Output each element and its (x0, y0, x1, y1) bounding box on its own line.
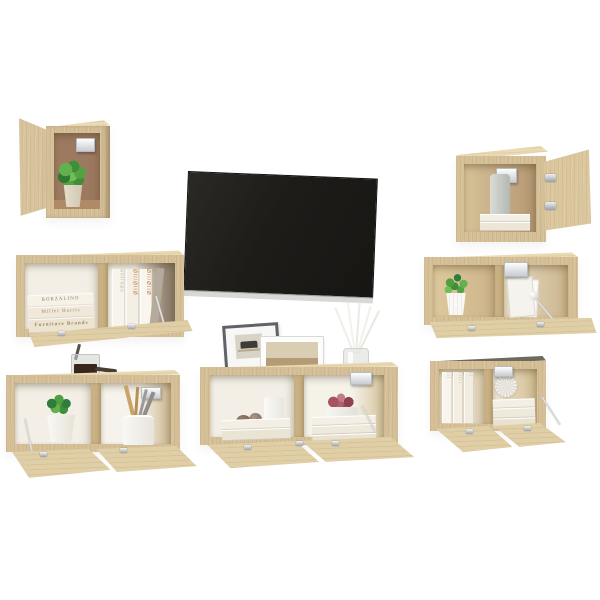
book-spine: IIIII (453, 372, 464, 423)
standing-books: III IIIII II (442, 372, 474, 423)
standing-books: antropo ØII/ØIIØ ØII/ØIIØ (112, 269, 152, 327)
book-spine: II (464, 372, 474, 423)
cabinet-right-middle (424, 257, 578, 325)
shelf-divider (98, 263, 108, 329)
bottom-right-left-compartment: III IIIII II (439, 369, 484, 424)
door-hinge-icon (537, 322, 544, 327)
book (480, 222, 530, 231)
book (480, 214, 530, 222)
door-hinge-icon (40, 452, 47, 457)
wall-bracket-icon (350, 372, 372, 385)
door-hinge-icon (120, 448, 127, 453)
cabinet-top-right-interior (464, 164, 536, 232)
door-hinge-icon (466, 429, 473, 434)
book-stack-horizontal: BORZALINO Miller Harris Furniture Brands (27, 293, 94, 329)
cabinet-top-left (46, 126, 110, 218)
cabinet-divider (484, 369, 493, 424)
book-spine: III (442, 372, 452, 423)
paper-fan-decor (495, 375, 517, 397)
wall-mounted-tv (183, 171, 378, 303)
cabinet-bottom-left (6, 375, 180, 452)
tv-screen (183, 171, 378, 300)
book-stack (222, 418, 291, 437)
door-hinge-icon (58, 331, 65, 336)
book-spine: antropo (112, 269, 125, 327)
artwork-table-line (238, 348, 261, 352)
door-hinge-icon (128, 324, 135, 329)
frame-artwork (235, 333, 264, 359)
cabinet-divider (495, 265, 504, 317)
gray-vase (490, 174, 510, 216)
artwork-bottles (240, 341, 257, 349)
succulent-foliage (41, 391, 77, 419)
shelf-left-compartment: BORZALINO Miller Harris Furniture Brands (25, 263, 98, 329)
tv-wall-cabinet-product-photo: BORZALINO Miller Harris Furniture Brands… (0, 0, 600, 600)
door-hinge-icon (332, 441, 339, 446)
book-stack (480, 214, 530, 229)
bottom-right-right-compartment (493, 369, 537, 424)
book (222, 428, 290, 441)
door-hinge-icon (244, 445, 251, 450)
cabinet-divider (294, 375, 304, 437)
cabinet-top-right (456, 156, 546, 242)
wall-bracket-icon (494, 366, 513, 377)
shelf-right-compartment: antropo ØII/ØIIØ ØII/ØIIØ (108, 263, 175, 329)
bottom-center-left-compartment (210, 375, 294, 437)
book-spine: ØII/ØIIØ (126, 269, 138, 327)
bottle-highlight (348, 352, 353, 364)
plant-pot (45, 415, 77, 442)
wall-bracket-icon (504, 262, 528, 277)
door-hinge-icon (545, 174, 556, 182)
door-hinge-icon (468, 326, 475, 331)
bottom-left-right-compartment (101, 383, 171, 444)
reed-diffuser (328, 300, 380, 372)
cabinet-top-right-door (542, 146, 592, 234)
door-hinge-icon (524, 426, 531, 431)
cabinet-top-left-interior (54, 133, 100, 209)
potted-plant-foliage (56, 159, 88, 189)
door-hinge-icon (296, 441, 303, 446)
cabinet-right-left-compartment (433, 265, 495, 317)
door-hinge-icon (545, 202, 556, 210)
plant-pot (445, 293, 467, 315)
pen-cup (123, 415, 154, 445)
wall-bracket-icon (76, 138, 95, 152)
cabinet-divider (91, 383, 101, 444)
book-stack (493, 398, 536, 422)
cabinet-bottom-right: III IIIII II (430, 361, 546, 431)
